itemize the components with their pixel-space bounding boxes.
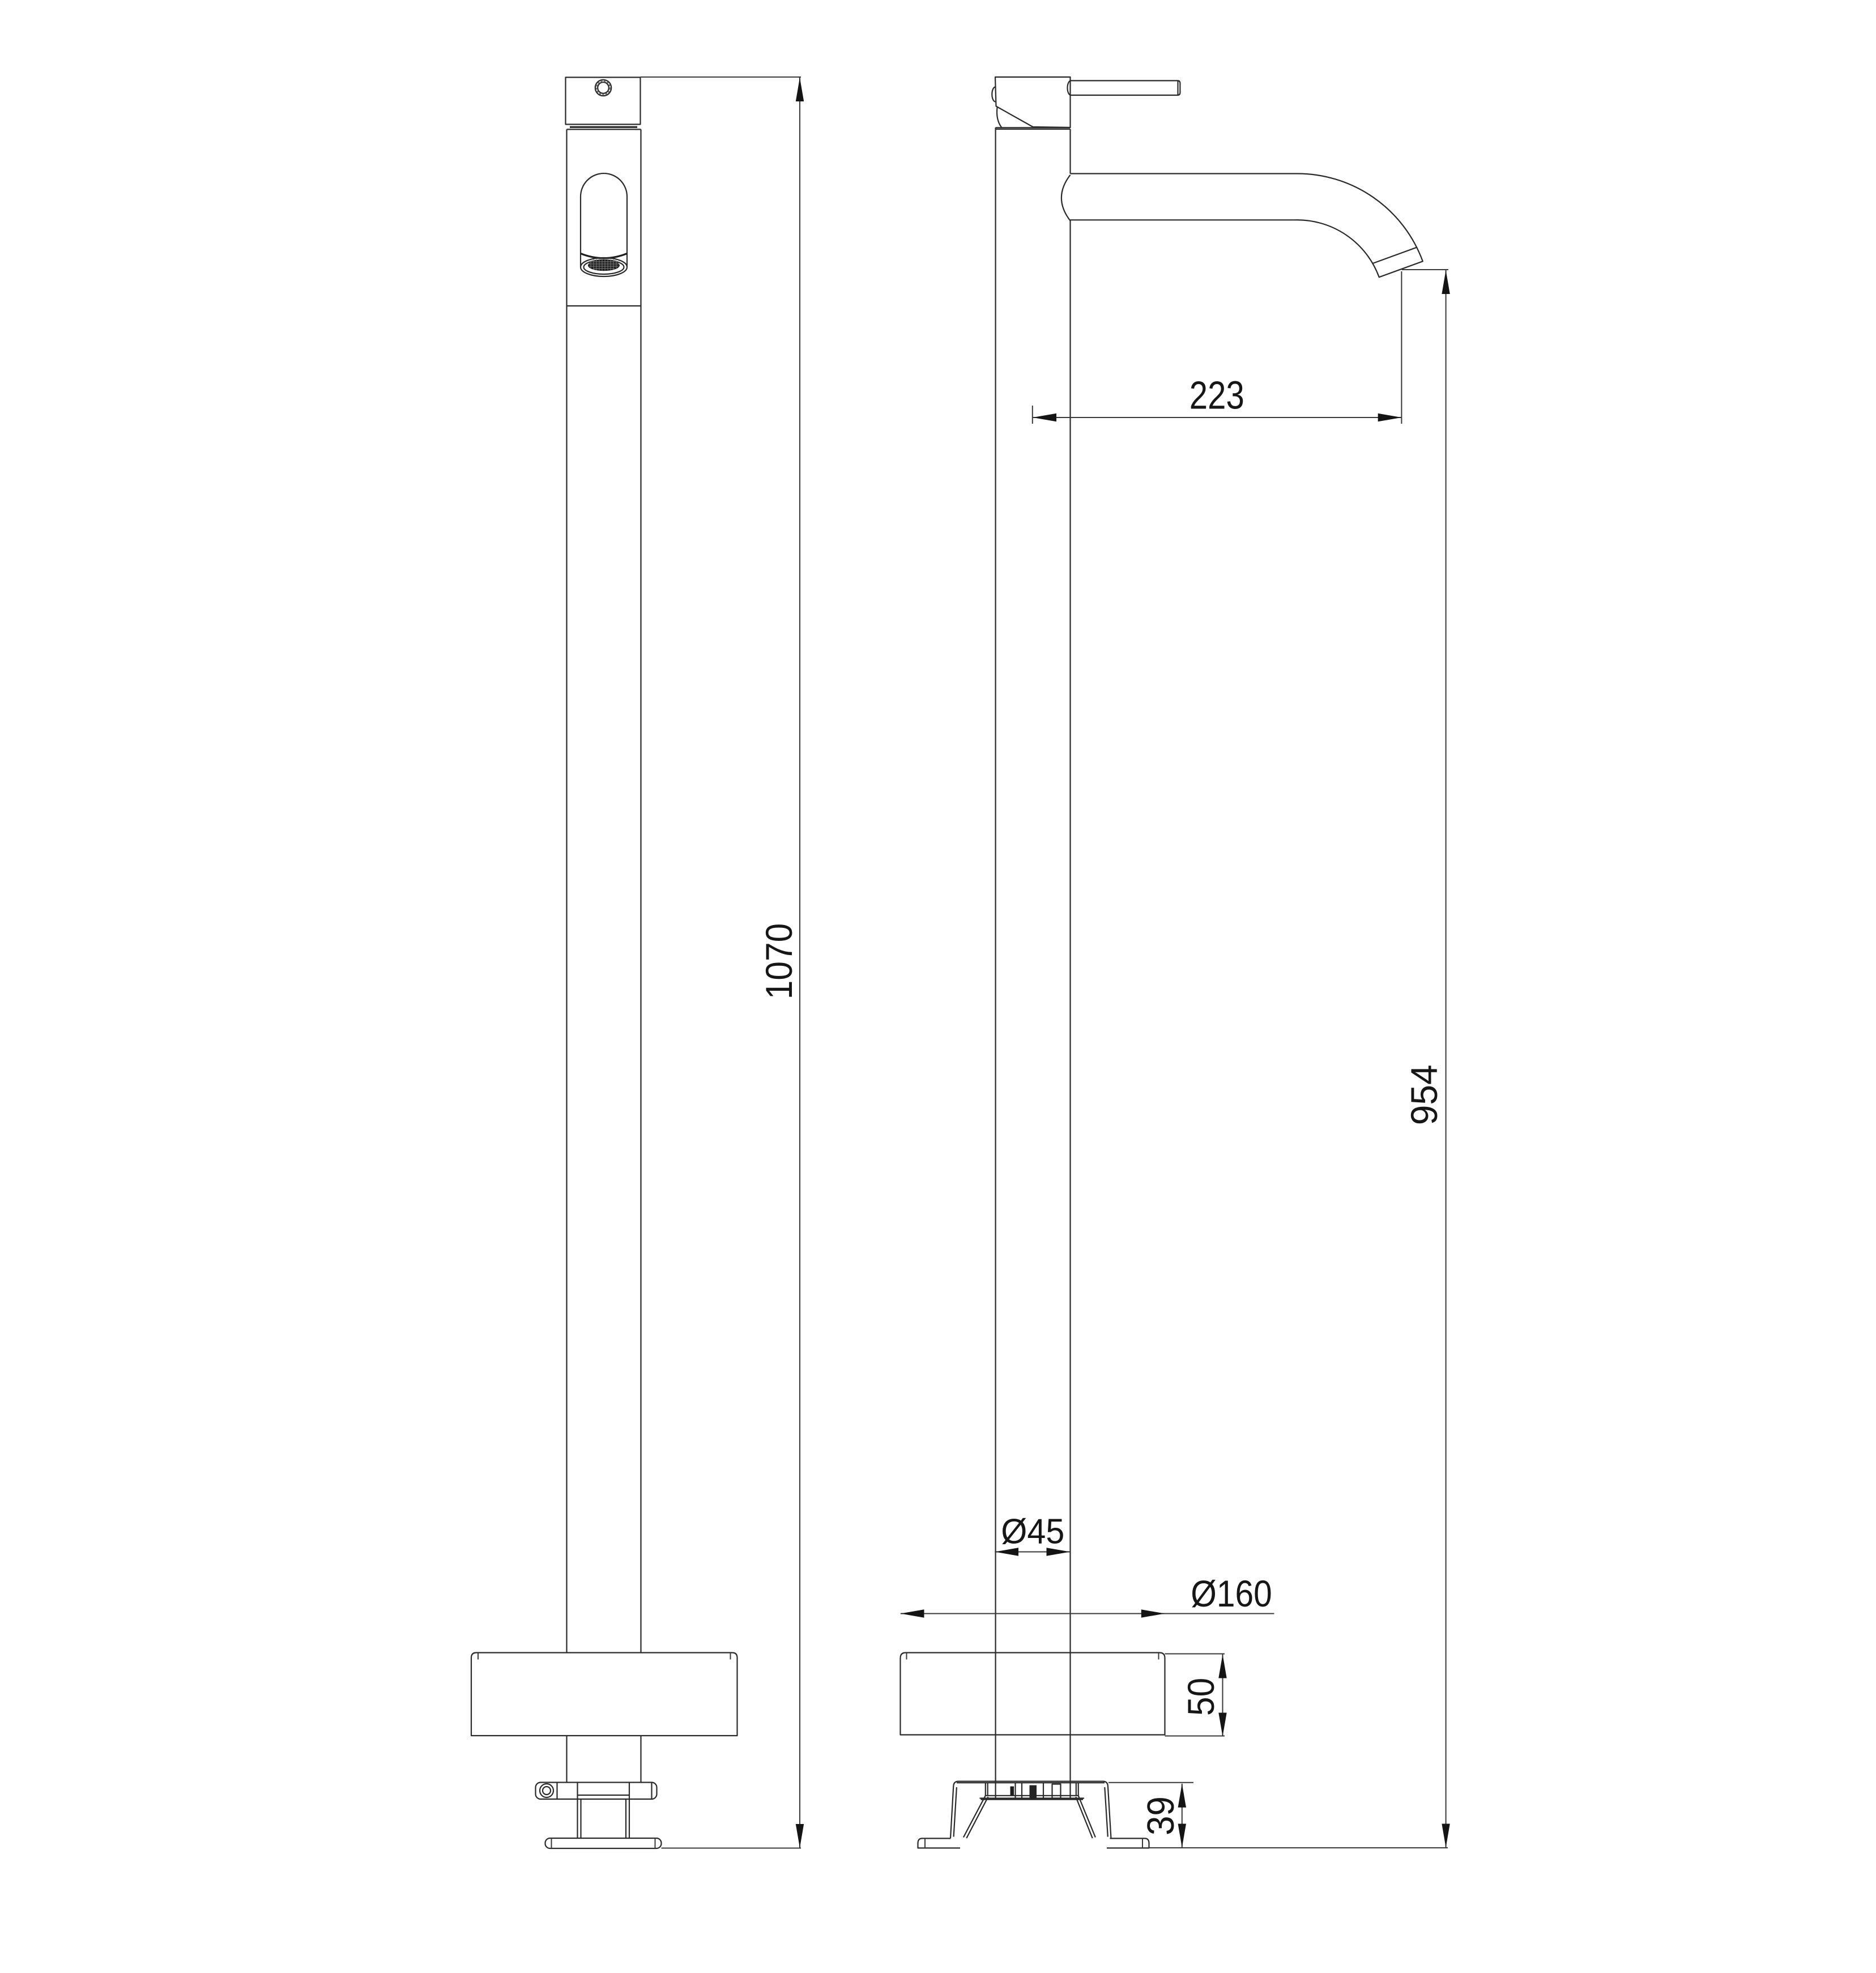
svg-text:50: 50 — [1180, 1678, 1222, 1716]
svg-text:1070: 1070 — [758, 923, 800, 1000]
svg-text:39: 39 — [1140, 1796, 1182, 1835]
svg-text:223: 223 — [1189, 373, 1244, 417]
svg-text:954: 954 — [1403, 1064, 1445, 1125]
svg-text:Ø160: Ø160 — [1191, 1573, 1272, 1614]
svg-text:Ø45: Ø45 — [1001, 1512, 1064, 1552]
